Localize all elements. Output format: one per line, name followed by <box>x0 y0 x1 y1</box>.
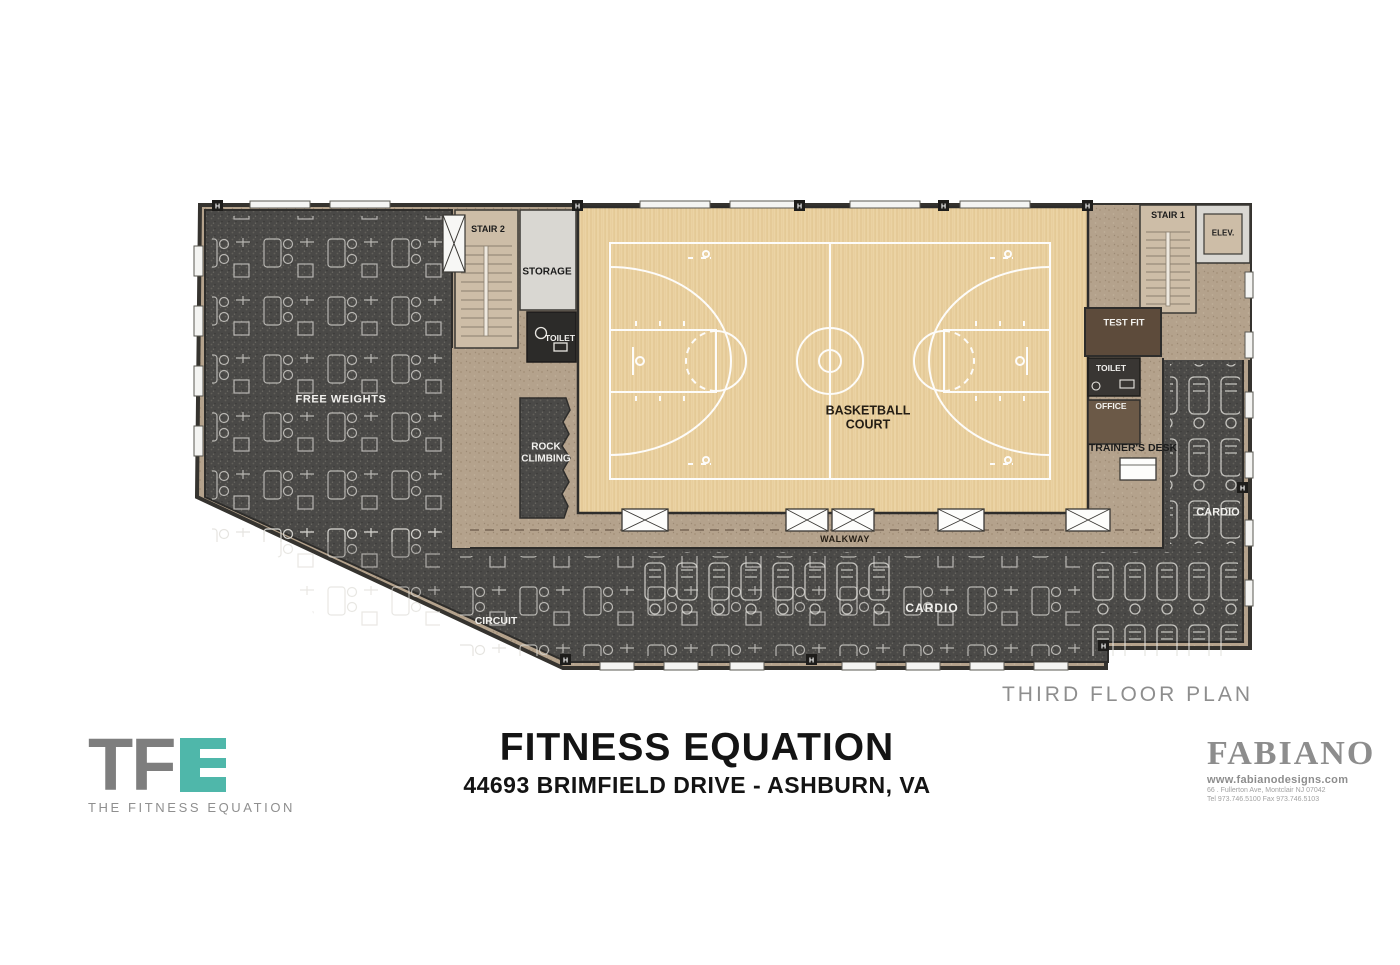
fabiano-phone: Tel 973.746.5100 Fax 973.746.5103 <box>1207 795 1377 804</box>
svg-text:H: H <box>1085 204 1090 211</box>
svg-text:H: H <box>1240 486 1245 493</box>
tfe-logo-caption: THE FITNESS EQUATION <box>88 800 318 815</box>
tfe-letter-e-icon <box>180 738 226 792</box>
stair-1 <box>1140 205 1196 313</box>
cardio-bikes-right <box>1170 364 1240 544</box>
trainers-desk <box>1120 458 1156 480</box>
fabiano-address: 66 . Fullerton Ave, Montclair NJ 07042 <box>1207 786 1377 795</box>
svg-text:H: H <box>575 204 580 211</box>
svg-text:H: H <box>797 204 802 211</box>
floor-plan-drawing: H H H H H H H H H <box>0 0 1400 965</box>
page: { "plan": { "caption": "THIRD FLOOR PLAN… <box>0 0 1400 965</box>
elevator <box>1196 205 1250 263</box>
cardio-treadmills-right <box>1090 552 1238 656</box>
diagonal-equipment <box>255 520 440 640</box>
tfe-e-notch <box>200 749 226 758</box>
fabiano-name: FABIANO <box>1207 737 1377 771</box>
svg-text:H: H <box>809 658 814 665</box>
rock-climbing-wall <box>520 398 570 518</box>
project-address: 44693 BRIMFIELD DRIVE - ASHBURN, VA <box>347 772 1047 799</box>
tfe-letter-f: F <box>131 738 174 792</box>
title-block: FITNESS EQUATION 44693 BRIMFIELD DRIVE -… <box>347 726 1047 799</box>
shaft-column <box>443 215 465 272</box>
project-title: FITNESS EQUATION <box>347 726 1047 770</box>
tfe-e-notch <box>200 768 226 777</box>
plan-caption: THIRD FLOOR PLAN <box>1002 683 1253 707</box>
tfe-logo: T F THE FITNESS EQUATION <box>88 732 318 815</box>
tfe-letter-t: T <box>88 738 131 792</box>
fabiano-logo: FABIANO www.fabianodesigns.com 66 . Full… <box>1207 737 1377 805</box>
fabiano-website: www.fabianodesigns.com <box>1207 774 1377 786</box>
basketball-court <box>578 207 1088 513</box>
toilet-right <box>1088 358 1140 396</box>
svg-text:H: H <box>563 658 568 665</box>
test-fit-room <box>1085 308 1161 356</box>
storage-room <box>520 210 576 310</box>
svg-text:H: H <box>215 204 220 211</box>
tfe-logo-letters: T F <box>88 732 318 792</box>
cardio-treadmills <box>640 552 890 616</box>
free-weights-equipment <box>212 216 446 542</box>
floor-plan-sheet: H H H H H H H H H STAIR 2 STORAGE TOILET… <box>0 0 1400 965</box>
svg-text:H: H <box>1101 644 1106 651</box>
office-room <box>1088 400 1140 444</box>
svg-text:H: H <box>941 204 946 211</box>
toilet-left <box>527 312 576 362</box>
